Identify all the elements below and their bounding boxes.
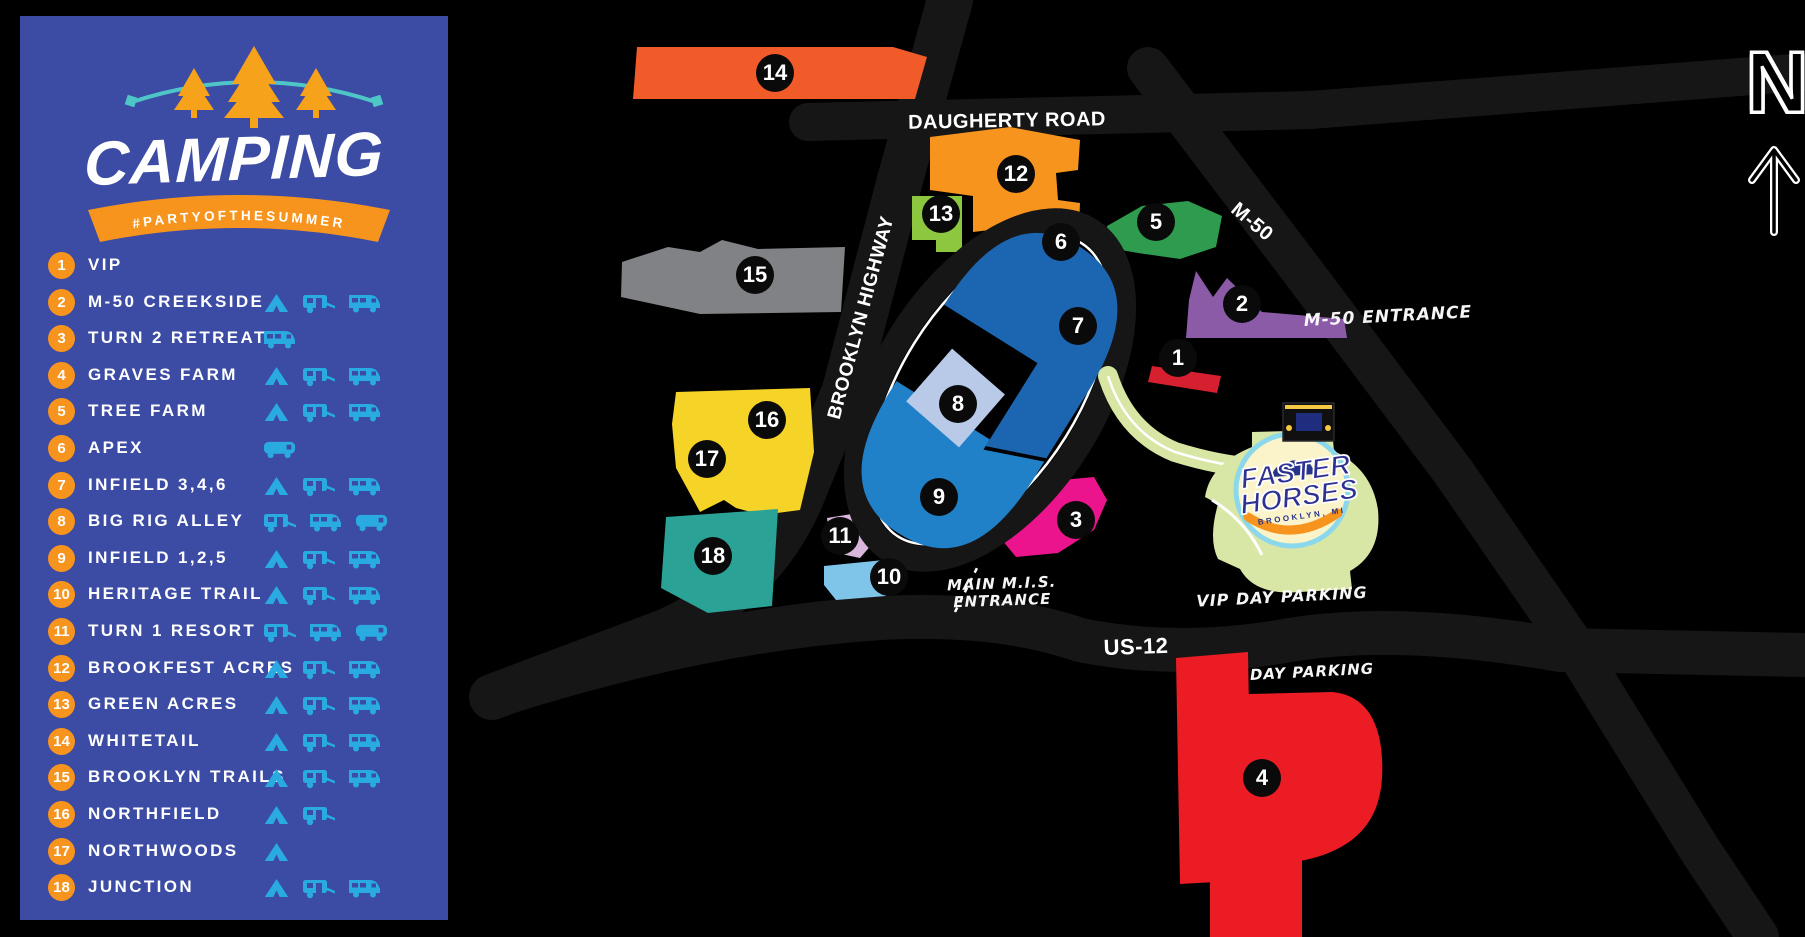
trailer-icon (302, 582, 336, 608)
legend-item-heritage-trail: 10HERITAGE TRAIL (20, 577, 448, 614)
rv-icon (348, 546, 382, 572)
zone-13-green-acres (912, 196, 962, 252)
zone-10-heritage-trail (824, 560, 886, 600)
legend-label: APEX (88, 438, 144, 458)
trees-and-lights-icon (124, 40, 384, 132)
tent-icon (263, 839, 290, 865)
legend-list: 1VIP2M-50 CREEKSIDE3TURN 2 RETREAT4GRAVE… (20, 248, 448, 907)
trailer-icon (263, 509, 297, 535)
legend-number: 10 (48, 581, 75, 608)
legend-allowed-vehicles (263, 473, 382, 499)
legend-number: 3 (48, 325, 75, 352)
zone-5-tree-farm (1107, 201, 1222, 259)
legend-label: GREEN ACRES (88, 694, 238, 714)
stage-icon (1283, 403, 1334, 441)
zone-1-vip (1148, 366, 1221, 393)
rv-icon (348, 582, 382, 608)
legend-allowed-vehicles (263, 399, 382, 425)
legend-allowed-vehicles (263, 363, 382, 389)
legend-item-graves-farm: 4GRAVES FARM (20, 358, 448, 395)
legend-allowed-vehicles (263, 326, 297, 352)
legend-item-m-50-creekside: 2M-50 CREEKSIDE (20, 285, 448, 322)
legend-number: 4 (48, 362, 75, 389)
legend-item-turn-2-retreat: 3TURN 2 RETREAT (20, 321, 448, 358)
hashtag-ribbon: #PARTYOFTHESUMMER (74, 194, 404, 256)
zone-18-junction (661, 509, 778, 613)
rv-icon (348, 473, 382, 499)
zone-15-brooklyn-trails (621, 240, 845, 314)
legend-label: INFIELD 3,4,6 (88, 475, 228, 495)
trailer-icon (302, 473, 336, 499)
rv-icon (309, 619, 343, 645)
legend-allowed-vehicles (263, 290, 382, 316)
tent-icon (263, 802, 290, 828)
trailer-icon (302, 875, 336, 901)
tent-icon (263, 473, 290, 499)
legend-item-tree-farm: 5TREE FARM (20, 394, 448, 431)
legend-label: TREE FARM (88, 401, 208, 421)
legend-label: WHITETAIL (88, 731, 201, 751)
legend-label: HERITAGE TRAIL (88, 584, 263, 604)
legend-label: JUNCTION (88, 877, 194, 897)
legend-number: 15 (48, 764, 75, 791)
trailer-icon (302, 363, 336, 389)
legend-number: 14 (48, 728, 75, 755)
rv-icon (309, 509, 343, 535)
legend-number: 18 (48, 874, 75, 901)
zone-4-graves-farm-day-parking (1176, 652, 1382, 937)
legend-allowed-vehicles (263, 765, 382, 791)
legend-number: 5 (48, 398, 75, 425)
tent-icon (263, 692, 290, 718)
bus-icon (355, 509, 389, 535)
zone-16-17-northfield-northwoods (672, 388, 814, 515)
legend-item-junction: 18JUNCTION (20, 870, 448, 907)
legend-item-apex: 6APEX (20, 431, 448, 468)
legend-item-turn-1-resort: 11TURN 1 RESORT (20, 614, 448, 651)
tent-icon (263, 729, 290, 755)
legend-label: TURN 2 RETREAT (88, 328, 267, 348)
road-daugherty (808, 72, 1805, 122)
tent-icon (263, 546, 290, 572)
trailer-icon (302, 399, 336, 425)
rv-icon (348, 692, 382, 718)
legend-number: 17 (48, 838, 75, 865)
rv-icon (348, 363, 382, 389)
legend-allowed-vehicles (263, 692, 382, 718)
legend-label: NORTHWOODS (88, 841, 239, 861)
legend-allowed-vehicles (263, 802, 336, 828)
legend-item-northfield: 16NORTHFIELD (20, 797, 448, 834)
legend-number: 16 (48, 801, 75, 828)
trailer-icon (302, 290, 336, 316)
legend-label: BIG RIG ALLEY (88, 511, 244, 531)
legend-label: INFIELD 1,2,5 (88, 548, 228, 568)
legend-allowed-vehicles (263, 656, 382, 682)
legend-label: BROOKLYN TRAILS (88, 767, 286, 787)
bus-icon (355, 619, 389, 645)
legend-allowed-vehicles (263, 509, 389, 535)
legend-item-big-rig-alley: 8BIG RIG ALLEY (20, 504, 448, 541)
legend-allowed-vehicles (263, 875, 382, 901)
tent-icon (263, 363, 290, 389)
legend-item-vip: 1VIP (20, 248, 448, 285)
trailer-icon (263, 619, 297, 645)
rv-icon (348, 875, 382, 901)
legend-number: 9 (48, 545, 75, 572)
tent-icon (263, 765, 290, 791)
legend-allowed-vehicles (263, 839, 290, 865)
tent-icon (263, 582, 290, 608)
legend-allowed-vehicles (263, 546, 382, 572)
tent-icon (263, 656, 290, 682)
legend-item-green-acres: 13GREEN ACRES (20, 687, 448, 724)
tent-icon (263, 875, 290, 901)
compass-north-label: N (1746, 34, 1805, 133)
camping-title: CAMPING (19, 116, 449, 202)
legend-number: 6 (48, 435, 75, 462)
legend-number: 7 (48, 472, 75, 499)
legend-label: M-50 CREEKSIDE (88, 292, 264, 312)
legend-number: 11 (48, 618, 75, 645)
legend-item-northwoods: 17NORTHWOODS (20, 834, 448, 871)
legend-item-whitetail: 14WHITETAIL (20, 724, 448, 761)
faster-horses-logo (1205, 403, 1378, 593)
legend-label: TURN 1 RESORT (88, 621, 256, 641)
rv-icon (348, 729, 382, 755)
rv-icon (348, 765, 382, 791)
legend-number: 13 (48, 691, 75, 718)
legend-allowed-vehicles (263, 619, 389, 645)
rv-icon (348, 656, 382, 682)
bus-icon (263, 436, 297, 462)
legend-sidebar: CAMPING #PARTYOFTHESUMMER 1VIP2M-50 CREE… (20, 16, 448, 920)
camping-map-page: N 123456789101112131415161718DAUGHERTY R… (0, 0, 1805, 937)
legend-item-brookfest-acres: 12BROOKFEST ACRES (20, 651, 448, 688)
legend-item-infield-1-2-5: 9INFIELD 1,2,5 (20, 541, 448, 578)
legend-number: 2 (48, 289, 75, 316)
tent-icon (263, 290, 290, 316)
legend-item-infield-3-4-6: 7INFIELD 3,4,6 (20, 468, 448, 505)
legend-number: 8 (48, 508, 75, 535)
legend-item-brooklyn-trails: 15BROOKLYN TRAILS (20, 760, 448, 797)
tent-icon (263, 399, 290, 425)
legend-label: GRAVES FARM (88, 365, 238, 385)
trailer-icon (302, 546, 336, 572)
zone-14-whitetail (633, 47, 927, 99)
north-arrow-icon (1752, 150, 1796, 232)
trailer-icon (302, 802, 336, 828)
legend-allowed-vehicles (263, 729, 382, 755)
legend-label: VIP (88, 255, 123, 275)
legend-allowed-vehicles (263, 436, 297, 462)
rv-icon (263, 326, 297, 352)
trailer-icon (302, 656, 336, 682)
trailer-icon (302, 765, 336, 791)
legend-number: 12 (48, 655, 75, 682)
legend-label: NORTHFIELD (88, 804, 222, 824)
legend-number: 1 (48, 252, 75, 279)
rv-icon (348, 290, 382, 316)
trailer-icon (302, 729, 336, 755)
legend-allowed-vehicles (263, 582, 382, 608)
rv-icon (348, 399, 382, 425)
trailer-icon (302, 692, 336, 718)
